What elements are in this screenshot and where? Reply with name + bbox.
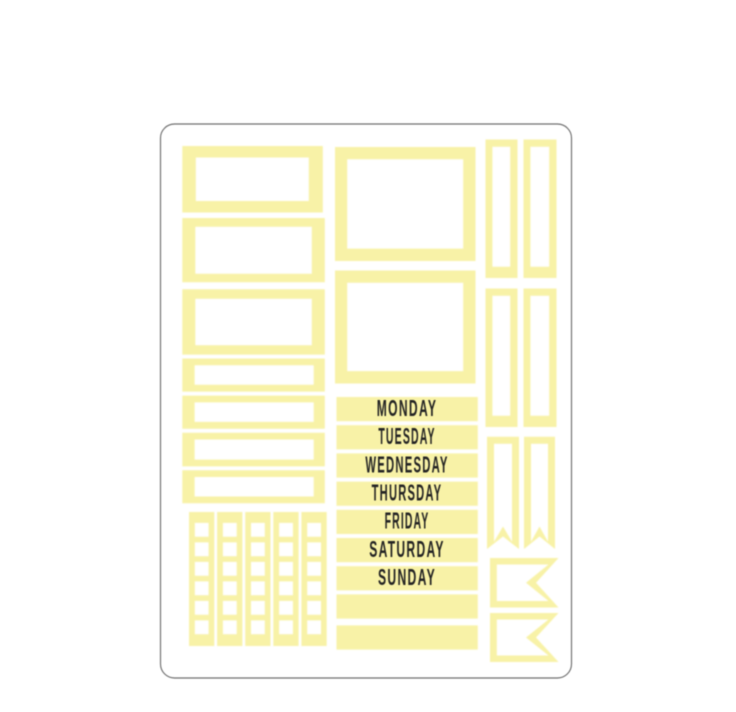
- svg-text:SUNDAY: SUNDAY: [378, 564, 436, 590]
- svg-text:SATURDAY: SATURDAY: [369, 536, 445, 562]
- svg-text:THURSDAY: THURSDAY: [372, 480, 443, 506]
- svg-text:TUESDAY: TUESDAY: [378, 423, 435, 449]
- svg-text:MONDAY: MONDAY: [377, 395, 438, 421]
- svg-text:WEDNESDAY: WEDNESDAY: [365, 451, 448, 477]
- svg-text:FRIDAY: FRIDAY: [385, 508, 430, 534]
